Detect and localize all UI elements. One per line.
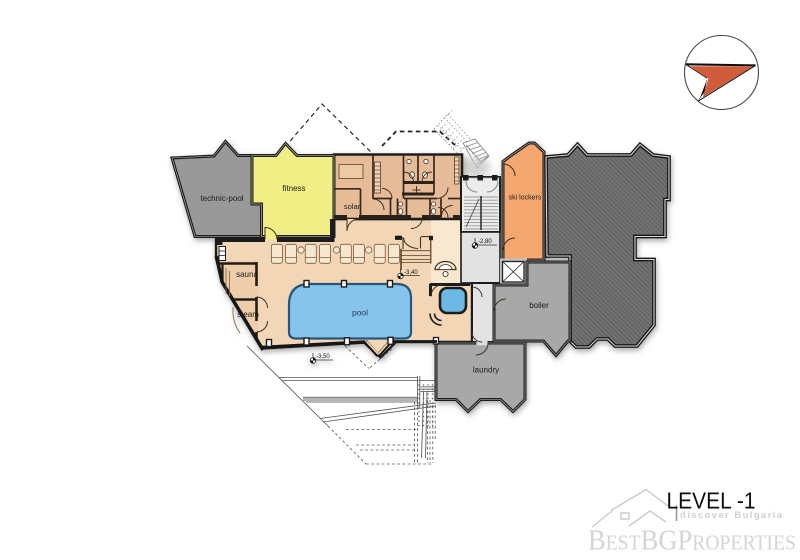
svg-text:LEVEL -1: LEVEL -1 [667,488,756,514]
svg-text:solar: solar [344,202,361,211]
svg-text:BESTBGPROPERTIES: BESTBGPROPERTIES [588,524,796,556]
svg-text:technic-pool: technic-pool [200,194,243,203]
svg-text:boiler: boiler [529,301,549,310]
svg-text:steam: steam [237,310,259,319]
svg-text:ski lockers: ski lockers [509,195,542,202]
svg-text:sauna: sauna [236,270,258,279]
svg-text:-3,50: -3,50 [316,354,330,360]
svg-text:-2,80: -2,80 [478,239,492,245]
svg-text:pool: pool [352,308,368,318]
svg-text:laundry: laundry [473,366,499,375]
svg-text:fitness: fitness [282,184,305,193]
